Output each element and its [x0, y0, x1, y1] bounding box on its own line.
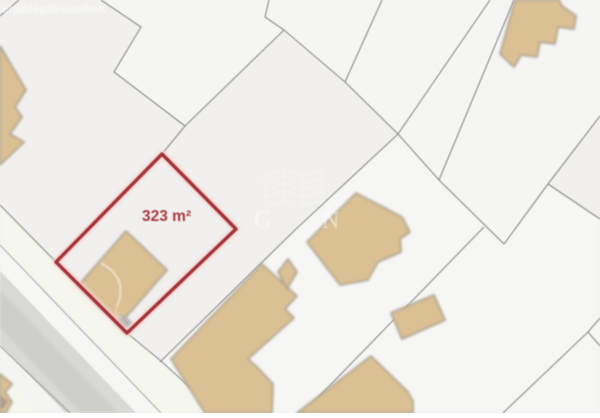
svg-text:323 m²: 323 m²: [142, 208, 191, 225]
svg-text:G: G: [254, 207, 271, 233]
svg-text:N: N: [322, 208, 339, 234]
svg-text:eladóépítésitelkek: eladóépítésitelkek: [2, 2, 106, 16]
